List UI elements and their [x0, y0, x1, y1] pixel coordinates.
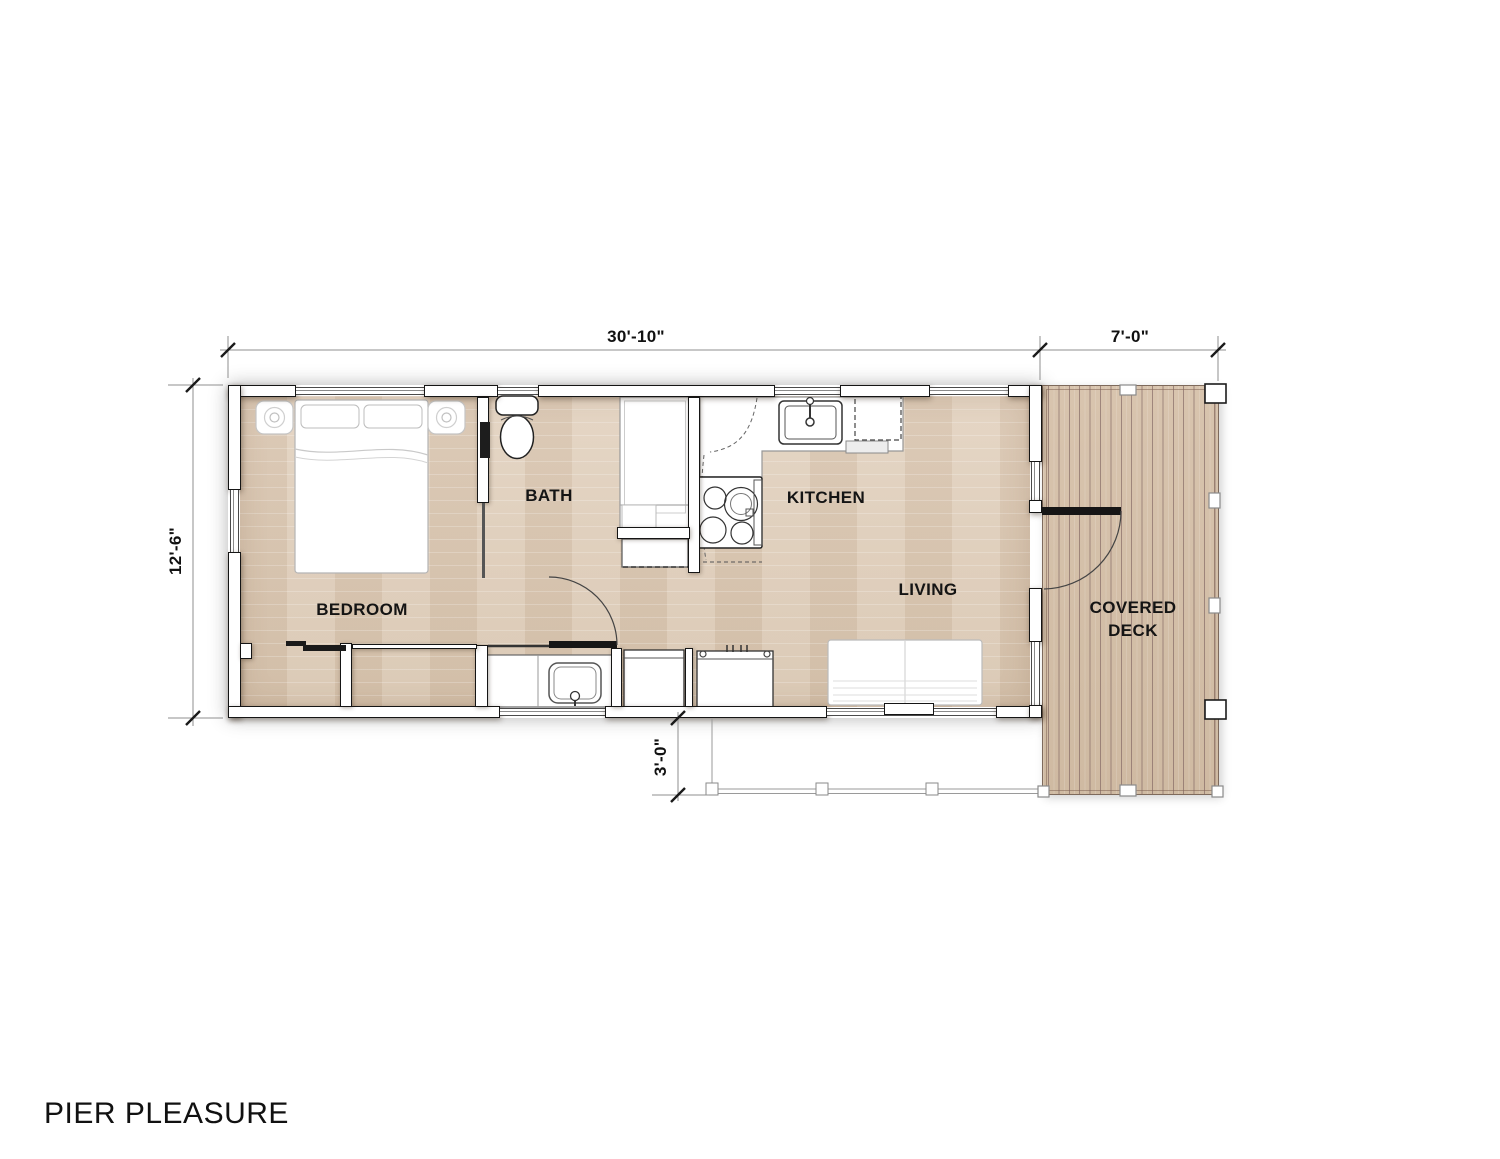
pocket-door-track [482, 503, 485, 578]
bath-door-swing [549, 577, 617, 645]
bath-door-leaf [549, 641, 617, 648]
dimension-deck-width: 7'-0" [1111, 327, 1149, 347]
dimension-overall-depth: 12'-6" [166, 527, 186, 575]
dimension-overall-width: 30'-10" [607, 327, 665, 347]
deck-rail-mark-top [1120, 385, 1136, 395]
dimension-walkway-depth: 3'-0" [651, 738, 671, 776]
walkway [706, 719, 1042, 795]
dimension-lines [168, 336, 1226, 801]
deck-corner-mark-sw [1038, 786, 1049, 797]
deck-rail-mark-bottom [1120, 785, 1136, 796]
room-label-covered-deck: COVERED DECK [1072, 597, 1194, 643]
walkway-post-1 [706, 783, 718, 795]
deck-rail-mark-east-1 [1209, 493, 1220, 508]
room-label-bedroom: BEDROOM [316, 600, 408, 620]
sliding-closet-doors [286, 641, 346, 651]
dimension-ticks [186, 343, 1225, 802]
bath-door [488, 577, 617, 648]
deck-posts [1038, 384, 1226, 797]
deck-door [1042, 507, 1121, 589]
deck-door-leaf [1042, 507, 1121, 515]
walkway-post-3 [926, 783, 938, 795]
room-label-bath: BATH [525, 486, 573, 506]
deck-corner-mark-se [1212, 786, 1223, 797]
floor-plan-sheet: BEDROOM BATH KITCHEN LIVING COVERED DECK… [0, 0, 1500, 1159]
walkway-post-2 [816, 783, 828, 795]
deck-post-ne [1205, 384, 1226, 403]
pocket-door [480, 422, 490, 458]
room-label-kitchen: KITCHEN [787, 488, 865, 508]
deck-post-se [1205, 700, 1226, 719]
deck-rail-mark-east-2 [1209, 598, 1220, 613]
annotation-layer [0, 0, 1500, 1159]
sheet-title: PIER PLEASURE [44, 1097, 289, 1131]
deck-door-swing [1044, 511, 1121, 589]
room-label-living: LIVING [898, 580, 957, 600]
